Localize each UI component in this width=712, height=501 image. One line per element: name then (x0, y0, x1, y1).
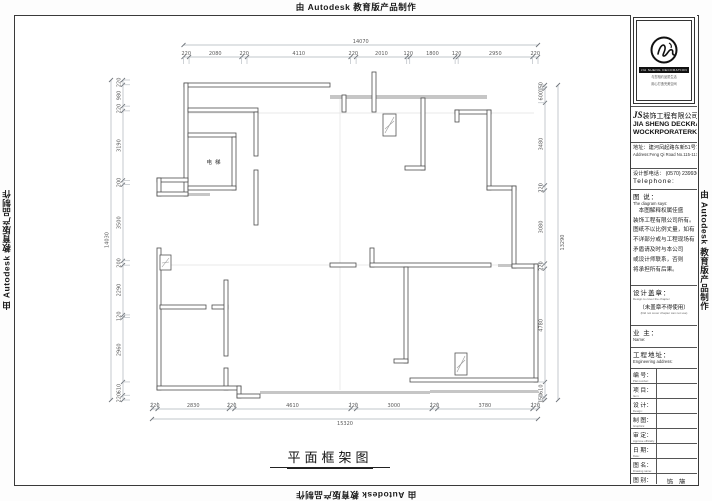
seal-warning-en: (Did not cover chapter can not use) (633, 311, 695, 315)
logo-section: JIA SHENG DECORATION 与您相约品质生活 用心打造完美空间 (631, 15, 697, 107)
notes-title-cn: 图 说： (633, 191, 695, 201)
seal-label-en: Design to cover the chapter (633, 297, 695, 301)
autodesk-credit-left: 由 Autodesk 教育版产品制作 (0, 0, 13, 500)
row-value (657, 444, 697, 458)
drawing-title: 平面框架图 (270, 447, 390, 468)
row-value (657, 414, 697, 428)
row-value (657, 429, 697, 443)
row-label-cn: 编 号： (633, 370, 655, 379)
row-label-en: Item: (633, 394, 655, 398)
row-value (657, 399, 697, 413)
company-name-cn: JS装饰工程有限公司 (633, 110, 695, 121)
autodesk-credit-bottom: 由 Autodesk 教育版产品制作 (0, 489, 712, 501)
row-approve: 审 定：Approve officially: (631, 429, 697, 444)
company-name-section: JS装饰工程有限公司 JIA SHENG DECKRATE WOCKRPORAT… (631, 107, 697, 143)
notes-line: 不详部分或与工程现场有 (633, 236, 695, 246)
site-label-cn: 工程地址： (633, 349, 695, 359)
row-label-cn: 设 计： (633, 400, 655, 409)
row-label-en: Approve officially: (633, 439, 655, 443)
notes-line: 本图解释权属佳盛 (633, 207, 695, 217)
row-label-cn: 审 定： (633, 430, 655, 439)
address-en: Address:Feng Qi Road No.115-117 (633, 152, 695, 158)
row-label-cn: 制 图： (633, 415, 655, 424)
address-cn: 地址：建河凤起路东新51号7号 (633, 144, 695, 152)
company-logo-icon (649, 35, 679, 65)
row-label-en: Plat number: (633, 379, 655, 383)
notes-line: 或设计师联系，否则 (633, 256, 695, 266)
row-label-en: Date: (633, 454, 655, 458)
company-js-mark: JS (633, 110, 643, 120)
drawing-title-text: 平面框架图 (287, 450, 372, 469)
autodesk-credit-right: 由 Autodesk 教育版产品制作 (698, 0, 711, 500)
notes-line: 装饰工程有限公司所有。 (633, 217, 695, 227)
drawing-frame (14, 15, 699, 486)
row-label-en: Drawing name: (633, 469, 655, 473)
diagram-notes-section: 图 说： The diagram says: 本图解释权属佳盛 装饰工程有限公司… (631, 190, 697, 286)
title-block-rows: 编 号：Plat number: 项 目：Item: 设 计：Design: 制… (631, 369, 697, 484)
row-label-en: Design: (633, 409, 655, 413)
row-value (657, 384, 697, 398)
phone-section: 设计部电话： (0570) 2399369 Telephone: (631, 169, 697, 190)
company-name-en-1: JIA SHENG DECKRATE (633, 121, 695, 129)
owner-label-en: Name: (633, 337, 695, 343)
logo-slogan-1: 与您相约品质生活 (651, 75, 677, 79)
logo-slogan-2: 用心打造完美空间 (651, 82, 677, 86)
row-number: 编 号：Plat number: (631, 369, 697, 384)
row-date: 日 期：Date: (631, 444, 697, 459)
owner-label-cn: 业 主： (633, 327, 695, 337)
row-label-cn: 项 目： (633, 385, 655, 394)
elevator-room-label: 电梯 (201, 158, 229, 166)
phone-en: Telephone: (633, 178, 695, 185)
owner-section: 业 主： Name: (631, 326, 697, 348)
row-label-cn: 图 名： (633, 460, 655, 469)
row-drafting: 制 图：Graphics: (631, 414, 697, 429)
autodesk-credit-top: 由 Autodesk 教育版产品制作 (0, 1, 712, 13)
title-block: JIA SHENG DECORATION 与您相约品质生活 用心打造完美空间 J… (630, 15, 697, 484)
site-label-en: Engineering address: (633, 359, 695, 365)
company-cn-text: 装饰工程有限公司 (643, 113, 697, 120)
row-item: 项 目：Item: (631, 384, 697, 399)
row-label-cn: 图 别： (633, 475, 655, 484)
row-label-cn: 日 期： (633, 445, 655, 454)
row-drawing-name: 图 名：Drawing name: (631, 459, 697, 474)
seal-label-cn: 设计盖章： (633, 287, 695, 297)
row-value: 饰 施 (657, 474, 697, 484)
address-section: 地址：建河凤起路东新51号7号 Address:Feng Qi Road No.… (631, 143, 697, 169)
row-label-en: Graphics: (633, 424, 655, 428)
logo-caption: JIA SHENG DECORATION (639, 67, 689, 73)
logo-outer-border: JIA SHENG DECORATION 与您相约品质生活 用心打造完美空间 (633, 17, 695, 104)
seal-warning-cn: （未盖章不得使用） (633, 303, 695, 311)
notes-line: 将承担所有后果。 (633, 266, 695, 276)
design-seal-section: 设计盖章： Design to cover the chapter （未盖章不得… (631, 286, 697, 326)
row-drawing-sort: 图 别：Diagram sort: 饰 施 (631, 474, 697, 484)
row-design: 设 计：Design: (631, 399, 697, 414)
notes-line: 矛盾请及时与本公司 (633, 246, 695, 256)
company-name-en-2: WOCKRPORATERKS (633, 129, 695, 137)
notes-line: 图纸不以比例丈量，如有 (633, 226, 695, 236)
logo-inner-border: JIA SHENG DECORATION 与您相约品质生活 用心打造完美空间 (636, 20, 692, 101)
row-value (657, 369, 697, 383)
phone-cn: 设计部电话： (0570) 2399369 (633, 170, 695, 178)
row-value (657, 459, 697, 473)
project-address-section: 工程地址： Engineering address: (631, 348, 697, 369)
